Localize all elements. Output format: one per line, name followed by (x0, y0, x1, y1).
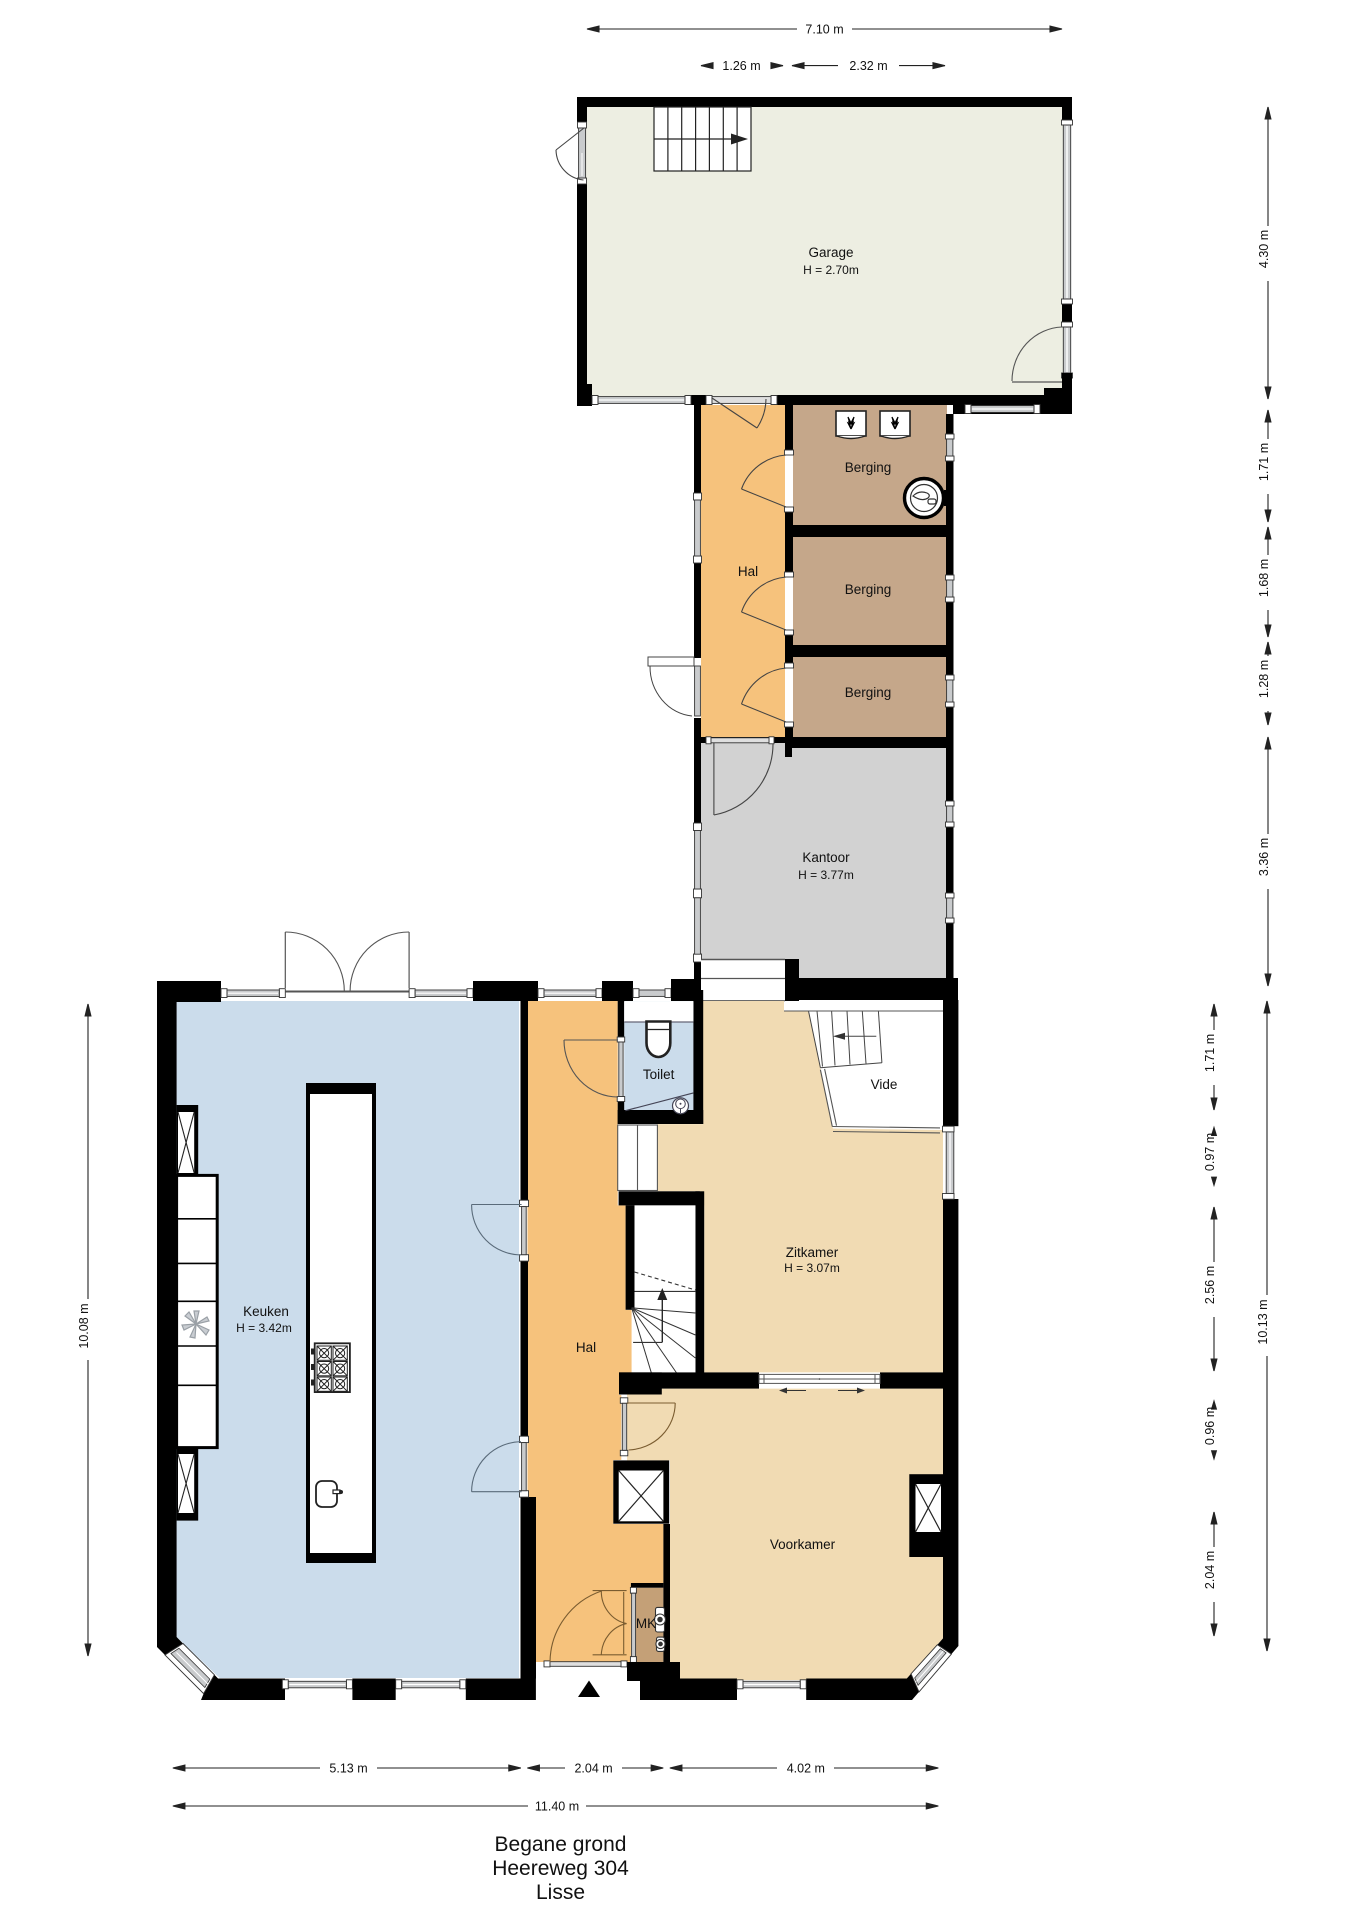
svg-text:1.71 m: 1.71 m (1203, 1034, 1217, 1072)
svg-text:Garage: Garage (808, 245, 853, 260)
svg-text:Hal: Hal (738, 564, 758, 579)
svg-text:Heereweg 304: Heereweg 304 (492, 1857, 629, 1880)
svg-text:3.36 m: 3.36 m (1257, 838, 1271, 876)
svg-text:H = 3.42m: H = 3.42m (236, 1321, 292, 1335)
svg-text:H = 3.77m: H = 3.77m (798, 868, 854, 882)
svg-text:Vide: Vide (871, 1077, 898, 1092)
svg-text:4.30 m: 4.30 m (1257, 230, 1271, 268)
svg-text:Hal: Hal (576, 1340, 596, 1355)
svg-text:2.04 m: 2.04 m (574, 1762, 612, 1776)
svg-text:Begane grond: Begane grond (495, 1833, 627, 1856)
svg-text:1.26 m: 1.26 m (722, 59, 760, 73)
svg-text:1.28 m: 1.28 m (1257, 660, 1271, 698)
svg-text:4.02 m: 4.02 m (787, 1762, 825, 1776)
svg-text:Berging: Berging (845, 582, 892, 597)
svg-text:H = 2.70m: H = 2.70m (803, 263, 859, 277)
svg-text:5.13 m: 5.13 m (329, 1762, 367, 1776)
svg-text:0.96 m: 0.96 m (1203, 1407, 1217, 1445)
svg-text:Keuken: Keuken (243, 1304, 289, 1319)
svg-text:Berging: Berging (845, 460, 892, 475)
svg-text:7.10 m: 7.10 m (805, 23, 843, 37)
svg-text:2.56 m: 2.56 m (1203, 1266, 1217, 1304)
svg-text:Toilet: Toilet (643, 1067, 675, 1082)
svg-text:Lisse: Lisse (536, 1881, 585, 1904)
svg-text:Berging: Berging (845, 685, 892, 700)
svg-text:11.40 m: 11.40 m (535, 1800, 579, 1814)
svg-text:MK: MK (636, 1616, 656, 1631)
svg-text:Kantoor: Kantoor (802, 850, 850, 865)
svg-text:Voorkamer: Voorkamer (770, 1537, 836, 1552)
svg-text:H = 3.07m: H = 3.07m (784, 1261, 840, 1275)
svg-text:1.71 m: 1.71 m (1257, 443, 1271, 481)
svg-text:1.68 m: 1.68 m (1257, 559, 1271, 597)
svg-text:2.04 m: 2.04 m (1203, 1551, 1217, 1589)
svg-text:10.13 m: 10.13 m (1256, 1299, 1270, 1344)
svg-text:10.08 m: 10.08 m (77, 1303, 91, 1348)
svg-text:0.97 m: 0.97 m (1203, 1133, 1217, 1171)
svg-text:Zitkamer: Zitkamer (786, 1245, 839, 1260)
svg-text:2.32 m: 2.32 m (849, 59, 887, 73)
